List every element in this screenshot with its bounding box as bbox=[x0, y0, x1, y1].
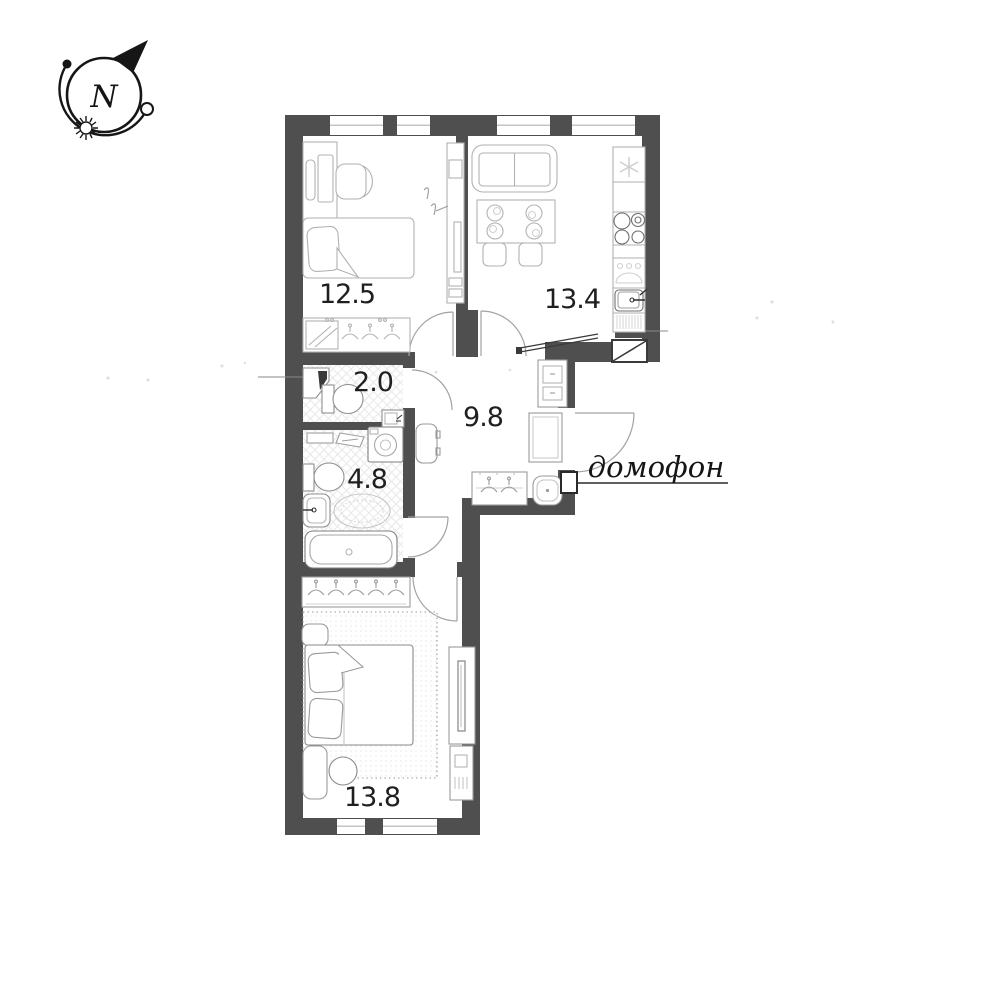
double-bed bbox=[305, 645, 413, 745]
dining-chairs bbox=[483, 243, 542, 266]
ottoman bbox=[329, 757, 357, 785]
window-bedroom-top bbox=[330, 116, 430, 135]
bedroom-shelf-unit bbox=[450, 746, 473, 800]
area-label-bathroom: 4.8 bbox=[347, 464, 387, 495]
entrance-rug bbox=[529, 413, 562, 462]
area-label-hallway: 9.8 bbox=[463, 402, 503, 433]
area-label-bedroom-bottom: 13.8 bbox=[344, 782, 400, 813]
bathtub bbox=[305, 531, 397, 568]
desk-chair bbox=[336, 164, 372, 199]
door-bedroom-top bbox=[409, 312, 453, 356]
dining-table bbox=[477, 200, 555, 243]
bedroom-top-furniture bbox=[303, 142, 464, 352]
door-wc bbox=[412, 370, 452, 410]
tv-console bbox=[449, 647, 475, 744]
area-label-kitchen: 13.4 bbox=[544, 284, 600, 315]
small-basin bbox=[382, 410, 404, 427]
intercom-label: домофон bbox=[588, 450, 725, 484]
compass-north-label: N bbox=[89, 79, 119, 115]
bedroom-bench bbox=[303, 746, 327, 799]
kitchen-counter bbox=[613, 147, 647, 332]
toilet-bathroom bbox=[303, 463, 344, 491]
door-bathroom bbox=[408, 517, 448, 557]
area-label-wc: 2.0 bbox=[353, 367, 393, 398]
single-bed bbox=[303, 218, 414, 278]
washing-machine bbox=[368, 427, 403, 462]
wall-hooks-icon bbox=[424, 188, 448, 215]
bathroom-shelf bbox=[307, 433, 333, 443]
sofa bbox=[472, 145, 557, 192]
desk bbox=[303, 142, 337, 222]
window-kitchen bbox=[497, 116, 635, 135]
pouf bbox=[533, 476, 562, 505]
floor-plan-canvas: N bbox=[0, 0, 1000, 1000]
window-bedroom-bottom bbox=[337, 819, 437, 834]
hall-cabinet bbox=[538, 360, 567, 407]
intercom-panel-icon bbox=[561, 472, 577, 493]
bathroom-sink bbox=[303, 494, 330, 527]
shelf-unit bbox=[447, 143, 464, 303]
floor-plan-svg: N bbox=[0, 0, 1000, 1000]
wardrobe-bedroom-top bbox=[303, 318, 410, 352]
nightstand bbox=[302, 624, 328, 646]
area-label-bedroom-top: 12.5 bbox=[319, 279, 375, 310]
bedroom-bottom-furniture bbox=[302, 577, 475, 800]
hall-bench bbox=[416, 424, 440, 463]
compass-rose-icon: N bbox=[59, 40, 153, 140]
hall-wardrobe bbox=[472, 472, 527, 505]
wardrobe-bedroom-bottom bbox=[302, 577, 410, 607]
vent-shaft-icon bbox=[612, 340, 647, 362]
